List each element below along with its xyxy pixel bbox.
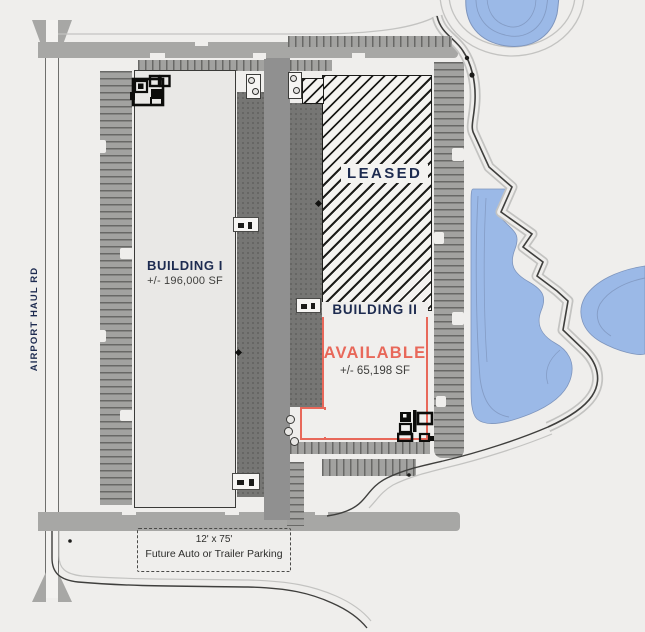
east-pond-contour xyxy=(484,198,487,362)
east-pond-lobe xyxy=(581,266,645,355)
building-1 xyxy=(134,70,236,508)
parking-island xyxy=(434,232,444,244)
street-name-airport-haul-rd: AIRPORT HAUL RD xyxy=(29,254,43,384)
guard-post-structure xyxy=(246,74,261,99)
parking-island xyxy=(96,140,106,153)
east-pond-contour xyxy=(547,350,561,384)
future-parking-label: Future Auto or Trailer Parking xyxy=(138,548,290,560)
parking-island xyxy=(436,396,446,407)
curb-notch xyxy=(225,509,239,515)
building-2-status: AVAILABLE xyxy=(322,344,428,363)
east-pond-contour xyxy=(476,196,509,417)
future-parking-area: 12' x 75' Future Auto or Trailer Parking xyxy=(137,528,291,572)
east-pond-main xyxy=(471,189,572,424)
parking-island xyxy=(120,410,133,421)
guard-post-structure xyxy=(288,72,302,99)
tree-icon xyxy=(286,415,295,424)
dock-structure xyxy=(296,298,321,313)
building-2-size: +/- 65,198 SF xyxy=(322,365,428,377)
dock-apron-building2 xyxy=(290,103,322,407)
bollard-icon xyxy=(290,75,297,82)
south-parking-row-2 xyxy=(322,459,416,476)
curb-notch xyxy=(195,41,208,46)
future-parking-dimensions: 12' x 75' xyxy=(138,534,290,545)
tree-icon xyxy=(290,437,299,446)
road-flare-bottom-right xyxy=(58,572,72,602)
dock-structure xyxy=(232,473,260,490)
bollard-icon xyxy=(293,87,300,94)
curb-notch xyxy=(122,509,136,515)
building-2-join-patch xyxy=(320,410,327,437)
parking-island xyxy=(120,248,133,259)
road-flare-bottom-left xyxy=(32,572,46,602)
north-pond-berm-inner xyxy=(449,0,575,47)
leased-building xyxy=(322,75,432,311)
parking-island xyxy=(452,148,464,161)
north-pond xyxy=(466,0,559,46)
west-parking-row xyxy=(100,71,132,505)
north-pond-contour xyxy=(487,0,536,27)
site-plan-canvas: BUILDING I +/- 196,000 SF LEASED BUILDIN… xyxy=(0,0,645,632)
dock-structure xyxy=(233,217,259,232)
parking-island xyxy=(452,312,464,325)
sidewalk-line xyxy=(58,16,437,34)
leased-label: LEASED xyxy=(341,164,428,183)
east-pond-contour xyxy=(597,278,645,336)
leased-building-notch xyxy=(302,78,324,104)
building-2-name: BUILDING II xyxy=(322,302,428,317)
bollard-icon xyxy=(248,77,255,84)
tree-icon xyxy=(284,427,293,436)
curb-notch xyxy=(315,509,328,515)
site-dot xyxy=(469,72,474,77)
north-parking-row-court xyxy=(290,60,332,71)
parking-island xyxy=(96,330,106,342)
site-dot xyxy=(68,539,72,543)
north-street-parking-row xyxy=(288,36,452,47)
office-footprint-icon xyxy=(129,71,173,108)
curb-notch xyxy=(253,53,266,59)
north-pond-contour xyxy=(476,0,548,36)
south-parking-row-1 xyxy=(290,442,430,454)
north-pond-berm-outer xyxy=(440,0,584,56)
site-dot xyxy=(465,56,469,60)
truck-court-aisle xyxy=(264,58,290,520)
dock-apron-building1 xyxy=(237,92,264,497)
curb-notch xyxy=(150,53,165,59)
curb-notch xyxy=(352,53,365,59)
office-footprint-icon xyxy=(397,410,434,442)
building-1-size: +/- 196,000 SF xyxy=(134,275,236,287)
bollard-icon xyxy=(252,88,259,95)
building-1-name: BUILDING I xyxy=(134,258,236,273)
